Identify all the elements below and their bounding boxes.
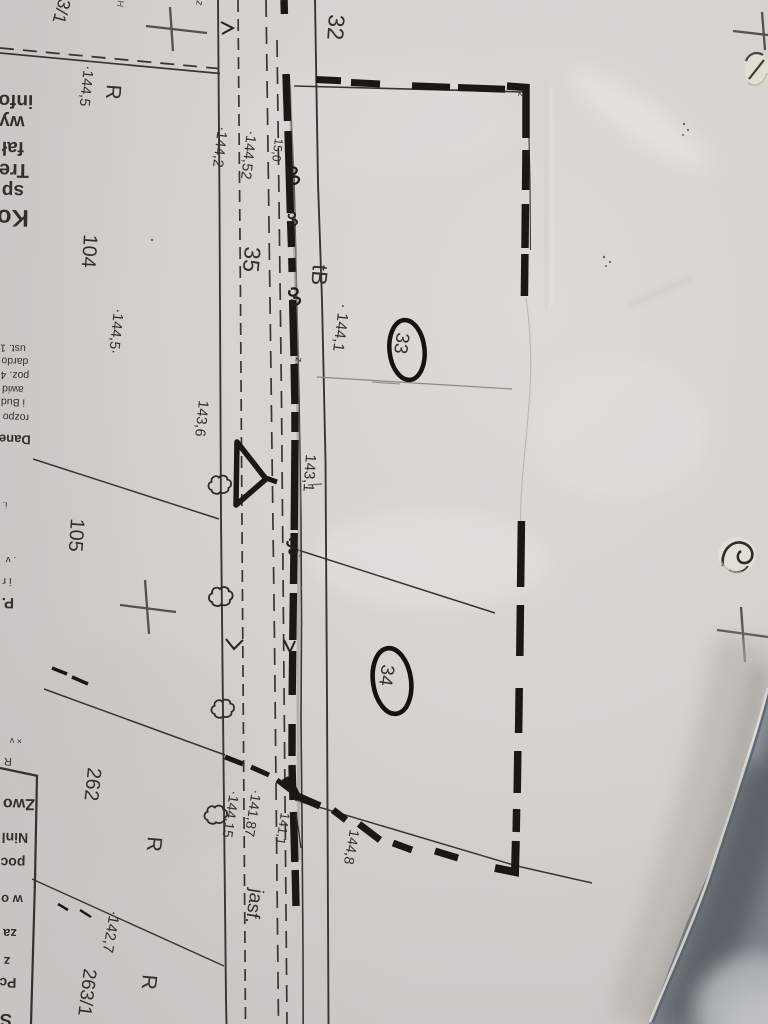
svg-text:. v: . v (6, 554, 17, 565)
svg-text:sp: sp (2, 180, 25, 201)
svg-text:z.: z. (292, 357, 304, 366)
svg-text:w o: w o (1, 892, 24, 907)
svg-text:33: 33 (389, 331, 413, 355)
svg-text:104: 104 (77, 234, 101, 269)
svg-text:rozpo: rozpo (2, 411, 29, 424)
svg-text:262: 262 (80, 766, 105, 801)
svg-text:fał: fał (1, 137, 24, 158)
svg-text:34: 34 (374, 663, 398, 687)
svg-text:wy: wy (0, 111, 26, 132)
svg-text:i r: i r (2, 575, 12, 587)
svg-text:105: 105 (64, 518, 88, 553)
svg-text:tB: tB (306, 264, 333, 287)
svg-text:Ninl: Ninl (2, 830, 29, 846)
svg-text:15,0: 15,0 (269, 138, 286, 163)
svg-text:i Bud: i Bud (1, 396, 25, 409)
svg-text:35: 35 (238, 246, 266, 274)
svg-text:Ko: Ko (0, 204, 29, 232)
svg-text:dardo: dardo (1, 355, 28, 368)
svg-text:32: 32 (322, 14, 350, 41)
svg-text:poz. 4: poz. 4 (0, 368, 29, 381)
svg-text:Dane: Dane (0, 431, 31, 447)
svg-text:R: R (101, 84, 125, 101)
svg-text:143,1: 143,1 (299, 454, 319, 493)
svg-text:Tre: Tre (0, 159, 29, 182)
svg-text:R: R (137, 974, 161, 991)
svg-text:info: info (0, 90, 33, 112)
svg-text:R: R (4, 755, 12, 767)
svg-text:za: za (2, 926, 17, 941)
svg-text:S: S (0, 1010, 12, 1024)
svg-text:poc: poc (0, 855, 25, 871)
svg-text:P.: P. (2, 594, 15, 611)
svg-text:awid: awid (2, 383, 24, 396)
svg-text:ust. 1: ust. 1 (0, 342, 26, 355)
svg-text:R: R (142, 836, 166, 853)
svg-text:Pc: Pc (0, 975, 17, 991)
svg-text:× v: × v (9, 736, 22, 746)
svg-text:Zwo: Zwo (3, 795, 36, 813)
svg-text:i.: i. (3, 500, 8, 510)
svg-text:z: z (3, 954, 10, 969)
